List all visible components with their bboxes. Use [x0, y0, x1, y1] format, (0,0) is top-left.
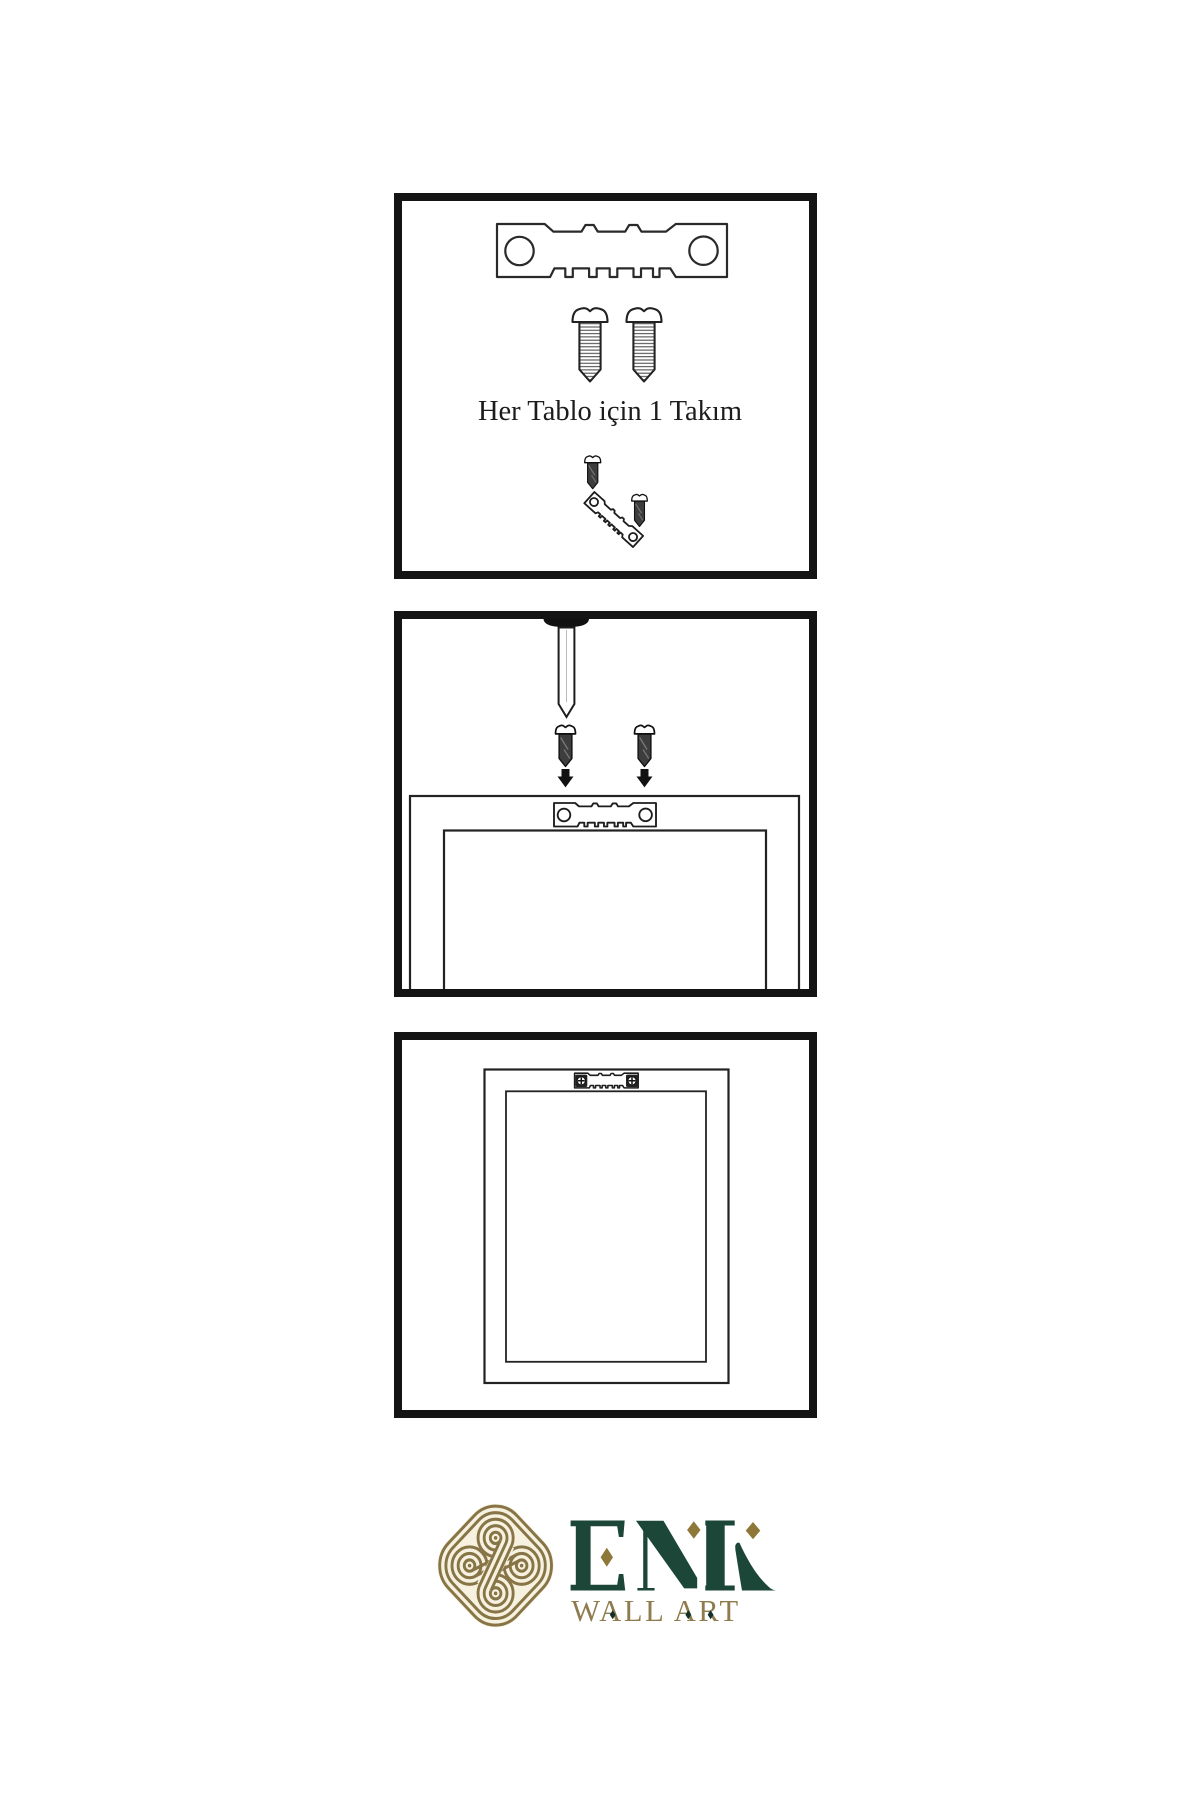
svg-text:Her Tablo için 1 Takım: Her Tablo için 1 Takım — [478, 396, 742, 427]
svg-text:WALL ART: WALL ART — [571, 1594, 740, 1628]
